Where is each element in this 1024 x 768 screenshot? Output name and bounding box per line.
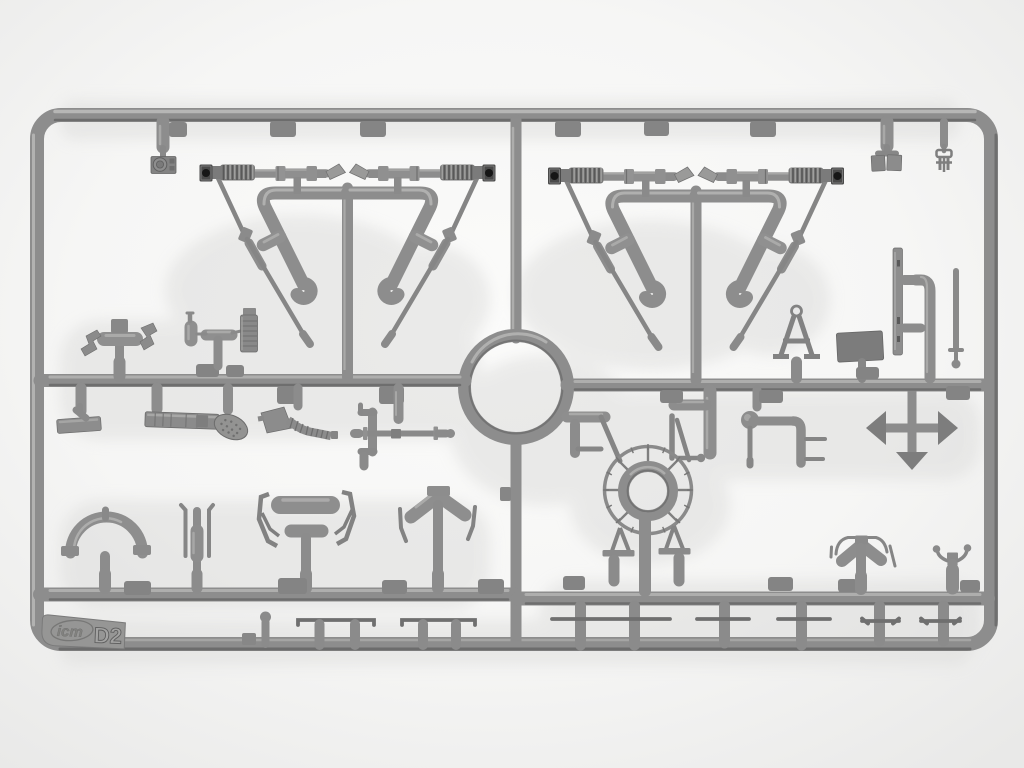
- svg-text:D2: D2: [93, 622, 122, 648]
- svg-text:icm: icm: [57, 623, 84, 641]
